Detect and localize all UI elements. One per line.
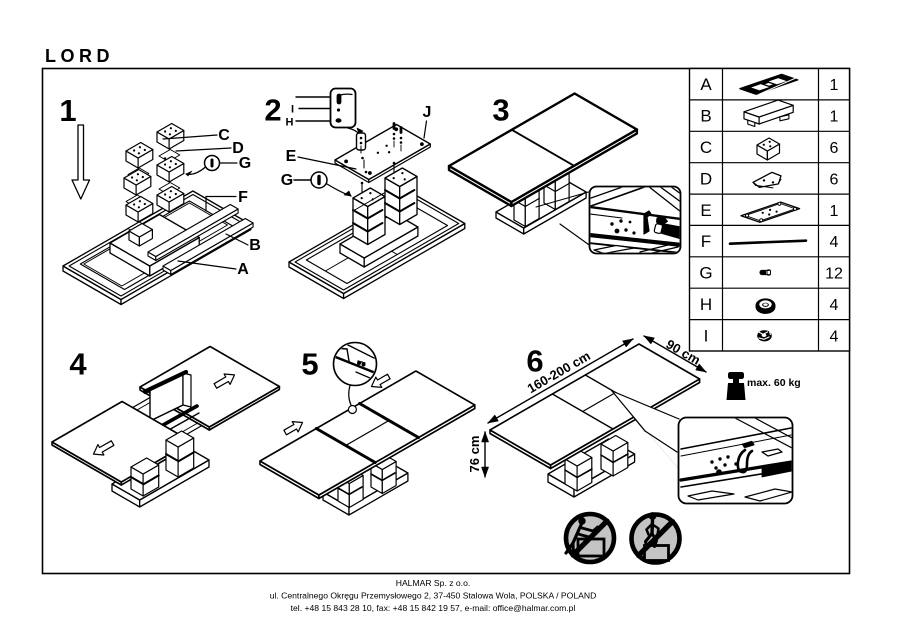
svg-text:A: A — [237, 261, 249, 278]
svg-text:B: B — [249, 237, 261, 254]
svg-text:I: I — [704, 326, 709, 345]
svg-text:LORD: LORD — [45, 46, 114, 66]
svg-text:E: E — [700, 201, 711, 220]
svg-text:6: 6 — [830, 171, 839, 188]
svg-text:4: 4 — [830, 234, 839, 251]
svg-text:I: I — [291, 104, 294, 116]
svg-text:D: D — [700, 169, 712, 188]
svg-text:6: 6 — [830, 140, 839, 157]
svg-text:2: 2 — [264, 93, 281, 128]
svg-text:4: 4 — [69, 347, 87, 382]
svg-text:F: F — [238, 189, 248, 206]
svg-text:ul. Centralnego Okręgu Przemys: ul. Centralnego Okręgu Przemysłowego 2, … — [270, 591, 597, 601]
svg-text:A: A — [700, 75, 712, 94]
svg-text:J: J — [423, 104, 432, 121]
svg-text:HALMAR Sp. z o.o.: HALMAR Sp. z o.o. — [396, 578, 471, 588]
svg-text:G: G — [239, 155, 251, 172]
svg-text:12: 12 — [825, 266, 843, 283]
svg-text:H: H — [286, 117, 294, 129]
svg-text:76 cm: 76 cm — [467, 436, 482, 473]
svg-text:C: C — [218, 127, 230, 144]
svg-text:H: H — [700, 295, 712, 314]
svg-text:C: C — [700, 138, 712, 157]
svg-text:B: B — [700, 107, 711, 126]
svg-text:max. 60 kg: max. 60 kg — [747, 377, 801, 389]
svg-text:1: 1 — [830, 109, 839, 126]
svg-text:5: 5 — [301, 347, 318, 382]
svg-text:1: 1 — [830, 203, 839, 220]
svg-text:1: 1 — [59, 93, 76, 128]
svg-text:G: G — [281, 172, 293, 189]
svg-text:F: F — [701, 232, 711, 251]
svg-text:G: G — [699, 264, 712, 283]
svg-text:E: E — [286, 148, 297, 165]
svg-text:4: 4 — [830, 328, 839, 345]
svg-text:tel. +48 15 843 28 10, fax: +4: tel. +48 15 843 28 10, fax: +48 15 842 1… — [291, 603, 576, 613]
svg-text:1: 1 — [830, 77, 839, 94]
svg-text:4: 4 — [830, 297, 839, 314]
svg-text:3: 3 — [492, 93, 509, 128]
